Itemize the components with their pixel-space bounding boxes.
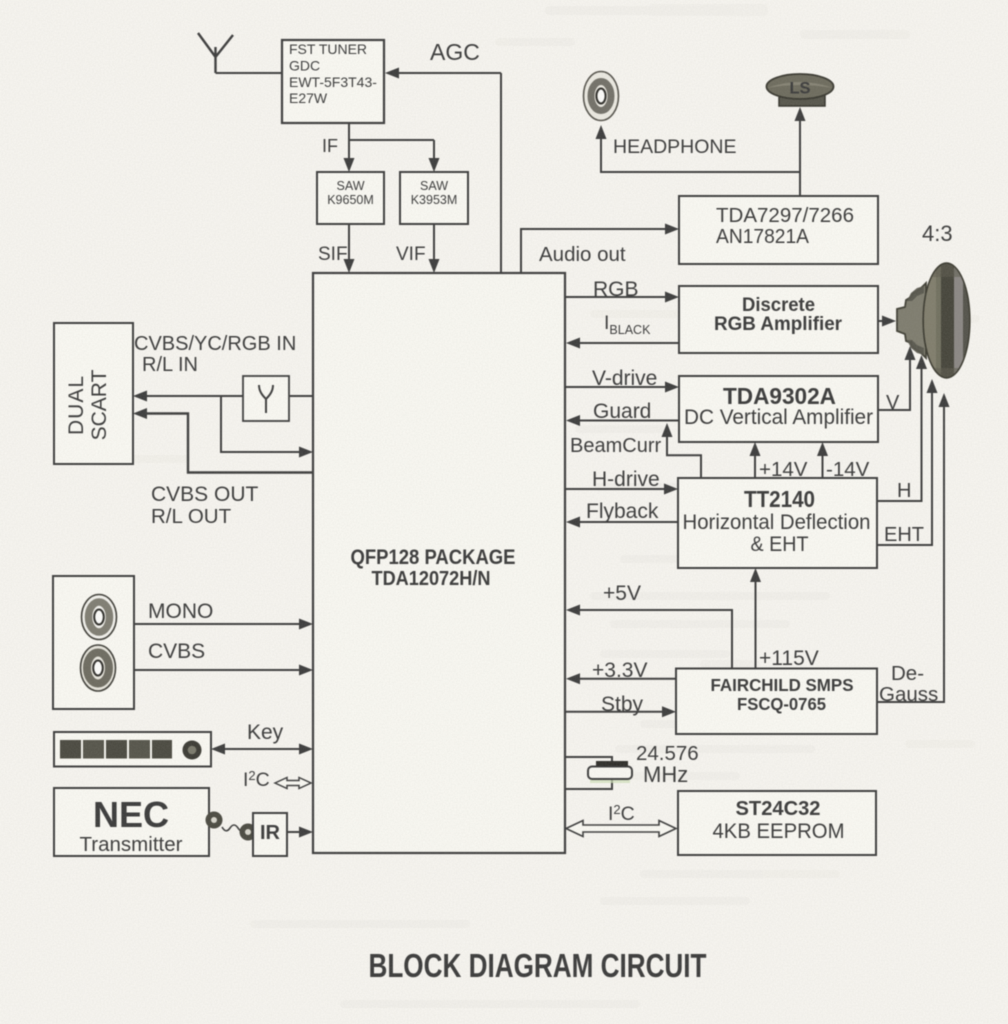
svg-text:DC Vertical Amplifier: DC Vertical Amplifier	[684, 406, 873, 429]
svg-text:CVBS OUT: CVBS OUT	[151, 483, 259, 506]
svg-text:RGB: RGB	[593, 278, 639, 301]
svg-text:MHz: MHz	[643, 762, 688, 787]
svg-text:AGC: AGC	[430, 39, 480, 65]
svg-text:SAW: SAW	[336, 179, 364, 193]
svg-text:H-drive: H-drive	[592, 468, 660, 491]
svg-text:IF: IF	[322, 136, 338, 156]
svg-text:HEADPHONE: HEADPHONE	[613, 136, 737, 158]
svg-text:R/L IN: R/L IN	[142, 354, 198, 376]
svg-text:Gauss: Gauss	[879, 683, 938, 706]
svg-text:TT2140: TT2140	[744, 486, 815, 512]
svg-text:4:3: 4:3	[922, 221, 953, 246]
svg-text:+3.3V: +3.3V	[592, 659, 647, 682]
svg-text:K9650M: K9650M	[327, 193, 374, 207]
svg-text:& EHT: & EHT	[751, 533, 809, 556]
svg-text:DUAL: DUAL	[65, 375, 88, 435]
svg-text:Stby: Stby	[601, 693, 644, 716]
svg-text:FST TUNER: FST TUNER	[289, 41, 367, 57]
svg-text:Discrete: Discrete	[742, 294, 815, 316]
svg-text:V: V	[886, 392, 900, 414]
svg-text:FAIRCHILD SMPS: FAIRCHILD SMPS	[711, 675, 854, 695]
svg-text:SCART: SCART	[88, 369, 111, 440]
svg-text:FSCQ-0765: FSCQ-0765	[737, 694, 826, 714]
svg-text:NEC: NEC	[93, 794, 169, 835]
svg-text:R/L OUT: R/L OUT	[151, 505, 232, 528]
svg-text:QFP128 PACKAGE: QFP128 PACKAGE	[351, 546, 516, 569]
svg-text:ST24C32: ST24C32	[736, 798, 821, 820]
svg-text:GDC: GDC	[289, 58, 320, 74]
svg-text:LS: LS	[789, 80, 810, 98]
svg-text:MONO: MONO	[148, 600, 213, 623]
svg-text:CVBS/YC/RGB IN: CVBS/YC/RGB IN	[134, 333, 296, 355]
svg-text:+5V: +5V	[603, 582, 641, 605]
svg-text:VIF: VIF	[396, 244, 426, 265]
svg-text:I2C: I2C	[608, 802, 635, 825]
svg-text:H: H	[897, 480, 911, 502]
svg-text:K3953M: K3953M	[411, 193, 458, 207]
svg-text:De-: De-	[891, 662, 924, 685]
svg-text:Guard: Guard	[593, 400, 651, 423]
svg-text:SAW: SAW	[420, 179, 448, 193]
svg-text:BeamCurr: BeamCurr	[570, 435, 661, 457]
svg-text:SIF: SIF	[318, 244, 348, 265]
svg-text:+115V: +115V	[759, 647, 819, 670]
svg-text:BLOCK DIAGRAM CIRCUIT: BLOCK DIAGRAM CIRCUIT	[369, 947, 707, 984]
svg-text:TDA7297/7266: TDA7297/7266	[716, 204, 854, 227]
svg-text:Transmitter: Transmitter	[80, 833, 183, 856]
svg-text:AN17821A: AN17821A	[716, 225, 809, 248]
svg-text:E27W: E27W	[289, 90, 328, 106]
svg-text:Audio out: Audio out	[539, 243, 626, 266]
svg-text:I2C: I2C	[243, 768, 270, 791]
svg-text:EWT-5F3T43-: EWT-5F3T43-	[289, 74, 377, 90]
svg-text:CVBS: CVBS	[148, 640, 205, 663]
svg-text:IR: IR	[260, 822, 281, 844]
svg-text:Horizontal Deflection: Horizontal Deflection	[683, 511, 871, 534]
svg-text:EHT: EHT	[884, 524, 924, 546]
svg-text:TDA12072H/N: TDA12072H/N	[372, 568, 491, 590]
svg-text:Flyback: Flyback	[586, 500, 659, 523]
svg-text:4KB EEPROM: 4KB EEPROM	[713, 820, 845, 843]
svg-text:RGB Amplifier: RGB Amplifier	[714, 314, 843, 335]
svg-text:Key: Key	[247, 721, 284, 744]
svg-text:V-drive: V-drive	[592, 367, 657, 390]
